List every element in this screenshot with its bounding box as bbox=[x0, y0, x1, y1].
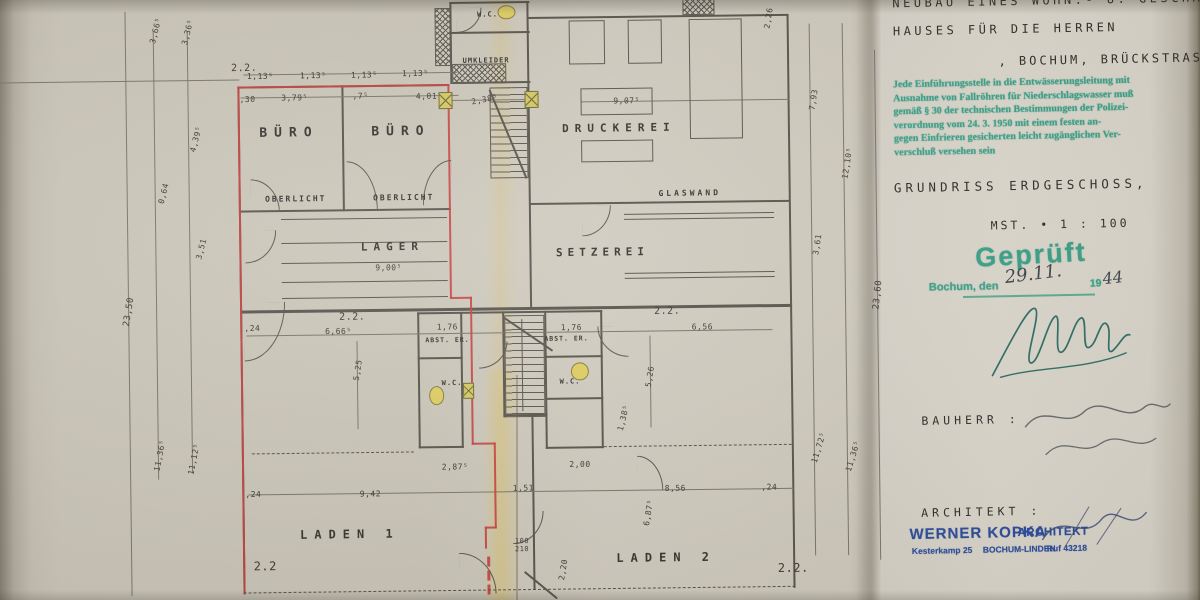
blueprint-photo: BÜROBÜROOBERLICHTOBERLICHTLAGERW.C.UMKLE… bbox=[0, 0, 1200, 600]
drawing-title: GRUNDRISS ERDGESCHOSS, bbox=[894, 175, 1148, 195]
regulation-stamp: Jede Einführungsstelle in die Entwässeru… bbox=[893, 74, 1135, 160]
architect-stamp-address: Kesterkamp 25 bbox=[912, 545, 973, 556]
project-title-line3: , BOCHUM, BRÜCKSTRASSE. bbox=[998, 50, 1200, 69]
architect-signature bbox=[1034, 495, 1155, 552]
bauherr-signature bbox=[1020, 394, 1176, 472]
project-title-line2: HAUSES FÜR DIE HERREN bbox=[893, 20, 1118, 38]
architekt-label: ARCHITEKT : bbox=[921, 504, 1041, 520]
bauherr-label: BAUHERR : bbox=[921, 412, 1020, 428]
title-block: NEUBAU EINES WOHN.- U. GESCHÄFTS- HAUSES… bbox=[0, 0, 1200, 600]
approver-signature bbox=[985, 285, 1137, 383]
project-title-line1: NEUBAU EINES WOHN.- U. GESCHÄFTS- bbox=[892, 0, 1200, 10]
scale-label: MST. • 1 : 100 bbox=[991, 216, 1130, 233]
